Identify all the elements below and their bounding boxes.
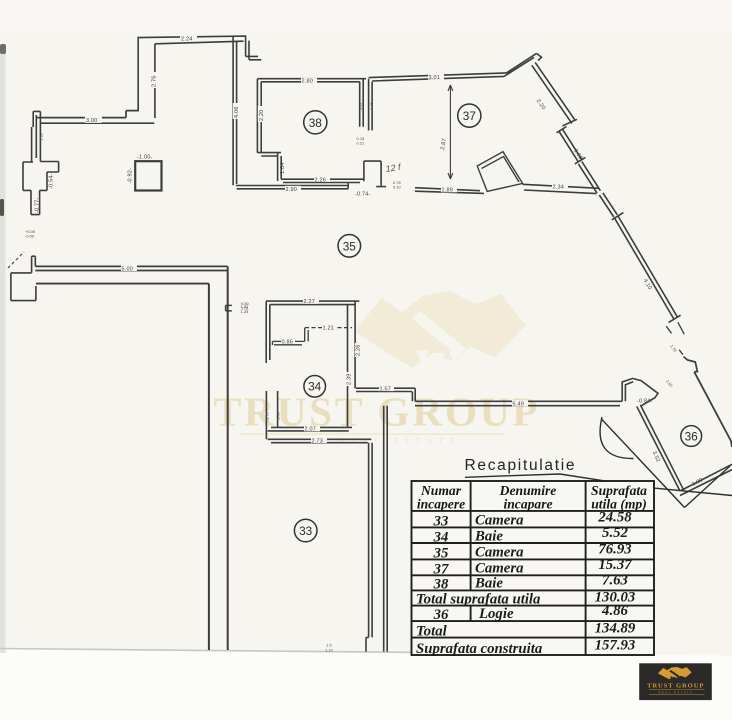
- svg-text:34: 34: [433, 529, 449, 545]
- svg-text:2.34: 2.34: [553, 185, 565, 191]
- svg-text:TRUST GROUP: TRUST GROUP: [647, 683, 704, 690]
- svg-text:Logie: Logie: [478, 606, 514, 622]
- svg-text:24.58: 24.58: [597, 510, 632, 526]
- svg-text:1.40: 1.40: [276, 411, 281, 420]
- svg-text:5.52: 5.52: [602, 525, 628, 541]
- svg-text:1.25: 1.25: [241, 309, 250, 314]
- svg-text:1.10: 1.10: [325, 648, 334, 653]
- svg-text:0.21: 0.21: [357, 141, 366, 146]
- svg-text:38: 38: [433, 576, 449, 592]
- svg-text:incapere: incapere: [417, 497, 465, 512]
- svg-text:Total: Total: [416, 624, 448, 640]
- svg-text:33: 33: [433, 514, 449, 530]
- svg-text:38: 38: [309, 116, 323, 130]
- svg-text:7.63: 7.63: [602, 572, 628, 588]
- svg-text:1.45: 1.45: [369, 101, 374, 110]
- svg-text:incapare: incapare: [503, 497, 552, 512]
- svg-text:15.37: 15.37: [598, 557, 632, 573]
- svg-text:-0.77-: -0.77-: [35, 197, 41, 213]
- svg-text:2.07: 2.07: [305, 427, 317, 433]
- svg-text:REAL ESTATE: REAL ESTATE: [659, 690, 694, 694]
- svg-text:4.06: 4.06: [234, 106, 240, 118]
- svg-text:Recapitulatie: Recapitulatie: [465, 457, 577, 474]
- svg-text:2.27: 2.27: [304, 299, 316, 305]
- svg-text:134.89: 134.89: [595, 621, 636, 637]
- svg-text:-0.84-: -0.84-: [637, 399, 653, 405]
- svg-text:-0.92-: -0.92-: [128, 168, 134, 184]
- svg-text:157.93: 157.93: [595, 638, 636, 654]
- svg-text:REAL ESTATE: REAL ESTATE: [339, 437, 460, 445]
- svg-text:3.00: 3.00: [86, 118, 98, 124]
- svg-text:35: 35: [433, 545, 449, 561]
- svg-text:5.00: 5.00: [122, 266, 134, 272]
- svg-text:2.90: 2.90: [286, 187, 298, 193]
- svg-text:2.26: 2.26: [355, 344, 361, 356]
- svg-text:2.39: 2.39: [347, 373, 353, 385]
- svg-text:1.89: 1.89: [442, 188, 454, 194]
- svg-text:Camera: Camera: [475, 544, 524, 560]
- svg-text:-1.00-: -1.00-: [137, 154, 153, 160]
- svg-text:Baie: Baie: [474, 575, 503, 591]
- svg-text:35: 35: [343, 239, 357, 253]
- svg-text:37: 37: [463, 109, 476, 123]
- svg-text:0.86: 0.86: [282, 340, 294, 346]
- svg-text:2.26: 2.26: [315, 177, 327, 183]
- svg-text:2.24: 2.24: [181, 37, 193, 43]
- svg-text:Baie: Baie: [474, 528, 503, 544]
- svg-text:Suprafata construita: Suprafata construita: [416, 641, 543, 657]
- svg-text:1.04: 1.04: [280, 162, 286, 174]
- svg-text:34: 34: [308, 380, 322, 394]
- svg-text:1.18: 1.18: [39, 132, 44, 141]
- svg-text:76.93: 76.93: [598, 541, 631, 557]
- svg-text:1.21: 1.21: [323, 326, 335, 332]
- svg-text:1.57: 1.57: [380, 387, 392, 393]
- svg-text:2.73: 2.73: [312, 438, 324, 444]
- svg-text:5.49: 5.49: [513, 402, 525, 408]
- svg-text:37: 37: [433, 561, 449, 577]
- svg-text:2.20: 2.20: [259, 109, 265, 121]
- svg-text:Camera: Camera: [475, 560, 524, 576]
- svg-text:-0.00: -0.00: [25, 234, 35, 239]
- svg-text:Camera: Camera: [475, 513, 524, 529]
- svg-text:36: 36: [685, 429, 699, 443]
- svg-text:0.10: 0.10: [393, 185, 402, 190]
- svg-text:2.76: 2.76: [152, 75, 158, 87]
- svg-text:TRUST GROUP: TRUST GROUP: [214, 389, 540, 435]
- svg-text:1.72: 1.72: [265, 411, 270, 420]
- svg-text:36: 36: [433, 607, 449, 623]
- svg-text:33: 33: [299, 524, 313, 538]
- svg-text:1.47: 1.47: [358, 101, 363, 110]
- svg-text:-0.54-: -0.54-: [49, 173, 55, 189]
- svg-text:3.01: 3.01: [429, 75, 441, 81]
- svg-text:2.80: 2.80: [302, 79, 314, 85]
- svg-text:4.86: 4.86: [601, 603, 628, 619]
- svg-text:-0.74-: -0.74-: [355, 192, 371, 198]
